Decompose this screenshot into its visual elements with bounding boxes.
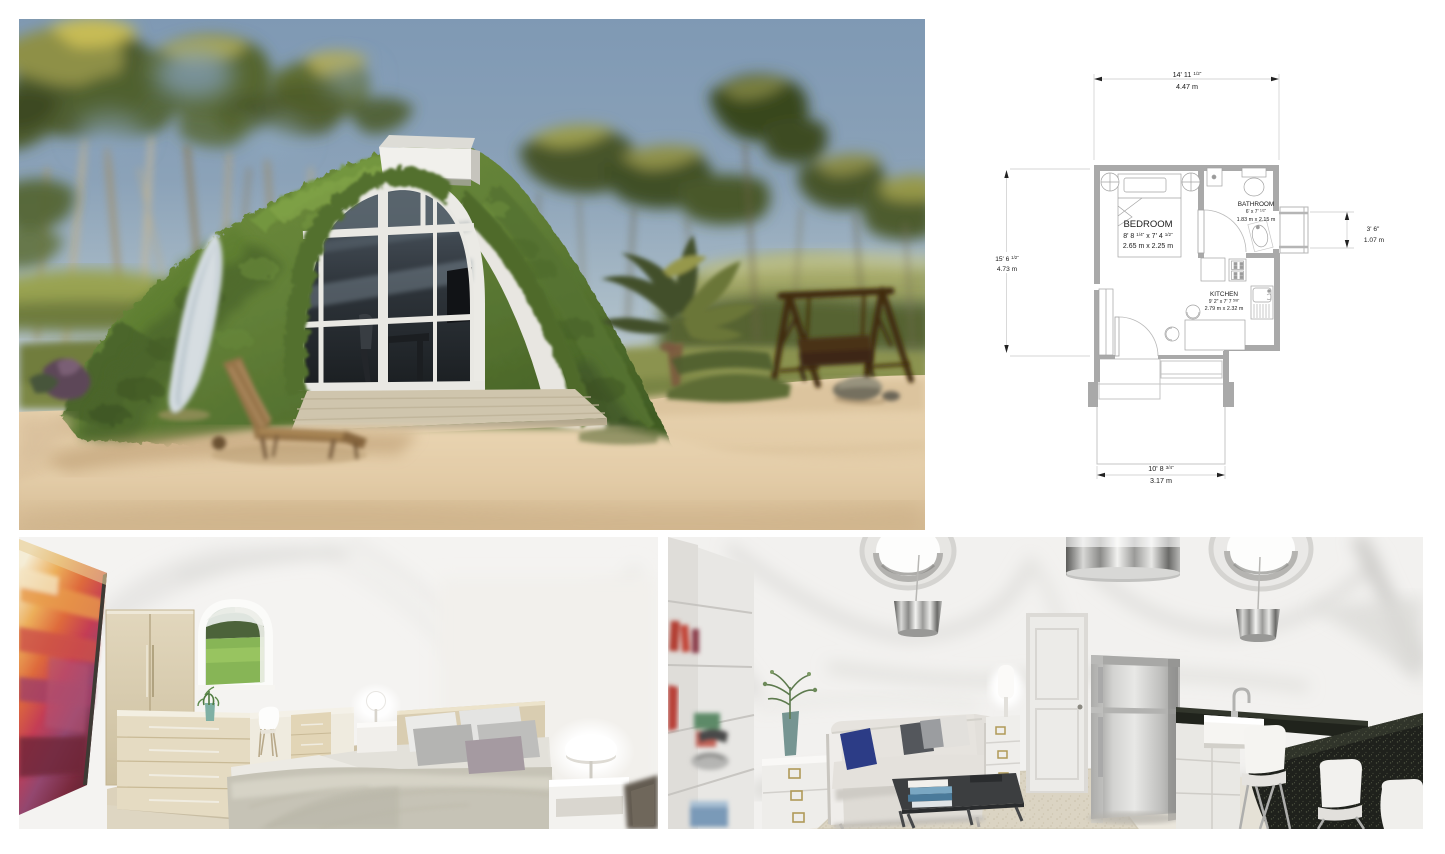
svg-text:2.79 m x 2.32 m: 2.79 m x 2.32 m [1205,306,1244,312]
svg-text:14' 11 1/2": 14' 11 1/2" [1173,70,1202,79]
svg-text:4.73 m: 4.73 m [997,266,1018,273]
svg-text:1.83 m x 2.15 m: 1.83 m x 2.15 m [1237,217,1276,223]
svg-text:6' x 7' 1/2": 6' x 7' 1/2" [1246,209,1267,215]
svg-text:BEDROOM: BEDROOM [1123,219,1172,230]
svg-text:10' 8 3/4": 10' 8 3/4" [1148,464,1174,473]
svg-text:2.65 m x 2.25 m: 2.65 m x 2.25 m [1123,243,1173,250]
svg-text:BATHROOM: BATHROOM [1238,201,1274,208]
svg-text:3.17 m: 3.17 m [1150,476,1172,485]
svg-text:3' 6": 3' 6" [1367,226,1380,233]
svg-text:1.07 m: 1.07 m [1364,237,1385,244]
svg-text:KITCHEN: KITCHEN [1210,291,1238,298]
svg-text:9' 2" x 7' 7 5/8": 9' 2" x 7' 7 5/8" [1209,299,1240,305]
svg-text:4.47 m: 4.47 m [1176,82,1198,91]
